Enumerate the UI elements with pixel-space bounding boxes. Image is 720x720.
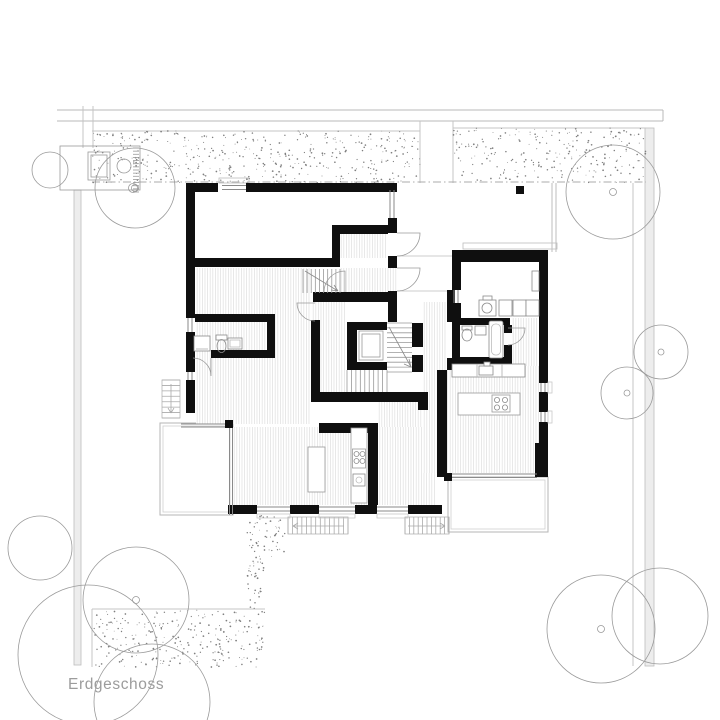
floor-plan-svg — [0, 0, 720, 720]
floor-label: Erdgeschoss — [68, 676, 164, 694]
floorplan-canvas: Erdgeschoss — [0, 0, 720, 720]
